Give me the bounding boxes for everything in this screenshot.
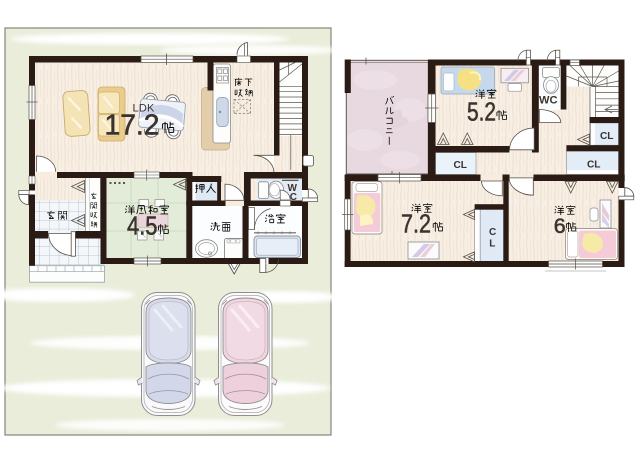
svg-text:WC: WC (539, 95, 558, 107)
svg-text:17.2: 17.2 (105, 110, 160, 142)
svg-text:5.2: 5.2 (467, 97, 496, 127)
svg-text:4.5: 4.5 (127, 213, 158, 241)
svg-text:C: C (290, 192, 297, 203)
svg-text:6: 6 (554, 214, 566, 238)
svg-text:7.2: 7.2 (401, 211, 431, 239)
svg-text:CL: CL (454, 159, 468, 171)
svg-text:CL: CL (600, 130, 614, 142)
svg-text:C: C (489, 227, 496, 238)
svg-text:L: L (489, 239, 495, 250)
svg-text:CL: CL (587, 159, 601, 171)
